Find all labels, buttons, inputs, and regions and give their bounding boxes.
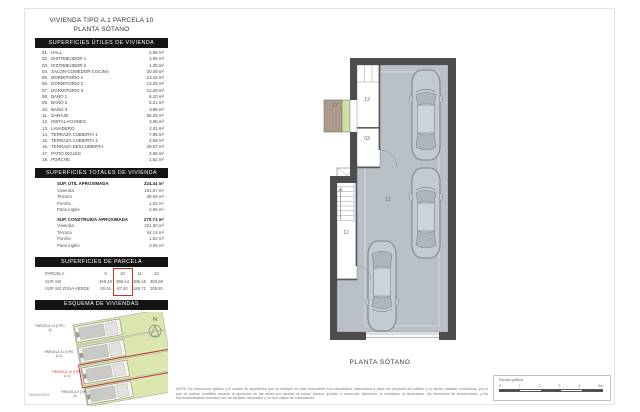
room-number: 18.: [42, 157, 48, 163]
total-group-util: SUP. ÚTIL APROXIMADA 224.44 m² Vivienda …: [57, 181, 164, 213]
section-header-esquema: ESQUEMA DE VIVIENDAS: [35, 300, 168, 310]
drawing-date: 06/03/2024: [29, 392, 49, 397]
scale-tick: 1: [519, 384, 521, 388]
disclaimer-note: NOTA: La información gráfica y el cuadro…: [176, 387, 488, 401]
parcel-10-highlight-box: [113, 268, 133, 296]
parcel-label: PARCELA 11 (TIPO A.2): [44, 350, 74, 358]
parcel-table-row: SUP. M2 459.40 396.14 396.16 463.96: [45, 278, 168, 286]
parcel-label: PARCELA 10 (TIPO A.1): [52, 370, 82, 378]
room-label-lavadero: 13: [364, 97, 370, 103]
parcel-table: PARCELA 9 10 11 12 SUP. M2 459.40 396.14…: [35, 267, 168, 296]
section-header-superficies-totales: SUPERFICIES TOTALES DE VIVIENDA: [35, 168, 168, 178]
north-letter: N: [153, 317, 157, 323]
room-label-instalaciones: 12: [343, 230, 349, 236]
car-icon: [409, 168, 442, 258]
parcel-label: PARCELA 12 (TIPO A): [35, 324, 65, 332]
room-label-patio: 17: [332, 103, 338, 109]
floor-plan: 17 13 03 11 12: [290, 50, 470, 350]
parcel-table-row: PARCELA 9 10 11 12: [45, 270, 168, 278]
parcel-table-row: SUP. M2 ZONA VERDE 29.24 87.40 185.71 20…: [45, 285, 168, 293]
room-label-garaje: 11: [385, 197, 390, 203]
scale-label: Escala gráfica: [499, 378, 605, 382]
room-area-value: 1.62 m²: [149, 157, 164, 163]
scale-ticks: 012345m: [499, 384, 603, 388]
scale-tick: 5m: [598, 384, 603, 388]
garage-door: [366, 334, 439, 338]
total-group-construida: SUP. CONSTRUIDA APROXIMADA 270.71 m² Viv…: [57, 217, 164, 249]
parcel-label: PARCELA 9 (TIPO A): [60, 390, 90, 398]
total-sub-row: Patio inglés 2.66 m²: [57, 207, 164, 213]
scale-tick: 4: [578, 384, 580, 388]
scale-bar: [499, 389, 603, 392]
left-data-panel: VIVIENDA TIPO A.1 PARCELA 10 PLANTA SÓTA…: [35, 16, 168, 406]
site-plan-schematic: N PARCELA 12 (TIPO A)PARCELA 11 (TIPO A.…: [35, 312, 168, 406]
car-icon: [365, 241, 398, 331]
total-areas-block: SUP. ÚTIL APROXIMADA 224.44 m² Vivienda …: [35, 178, 168, 253]
section-header-superficies-utiles: SUPERFICIES ÚTILES DE VIVIENDA: [35, 38, 168, 48]
car-icon: [409, 70, 442, 160]
total-group-rows: Vivienda 181.57 m² Terraza 38.59 m² Porc…: [57, 188, 164, 214]
plan-caption: PLANTA SÓTANO: [300, 359, 460, 366]
useful-areas-table: 01.HALL 2.96 m² 02.DISTRIBUIDOR 1 1.05 m…: [35, 48, 168, 164]
drawing-title: VIVIENDA TIPO A.1 PARCELA 10 PLANTA SÓTA…: [35, 16, 168, 34]
scale-tick: 0: [499, 384, 501, 388]
floor-plan-svg: 17 13 03 11 12: [290, 50, 470, 350]
total-group-rows: Vivienda 221.90 m² Terraza 44.14 m² Porc…: [57, 223, 164, 249]
room-label-distribuidor: 03: [364, 136, 370, 142]
scale-tick: 2: [539, 384, 541, 388]
title-line-1: VIVIENDA TIPO A.1 PARCELA 10: [35, 16, 168, 25]
graphic-scale: Escala gráfica 012345m: [493, 375, 611, 401]
area-row: 18.PORCHE 1.62 m²: [42, 157, 164, 163]
scale-tick: 3: [559, 384, 561, 388]
section-header-superficies-parcela: SUPERFICIES DE PARCELA: [35, 257, 168, 267]
total-sub-row: Patio inglés 3.05 m²: [57, 243, 164, 249]
room-name: PORCHE: [51, 157, 70, 163]
title-line-2: PLANTA SÓTANO: [35, 25, 168, 34]
